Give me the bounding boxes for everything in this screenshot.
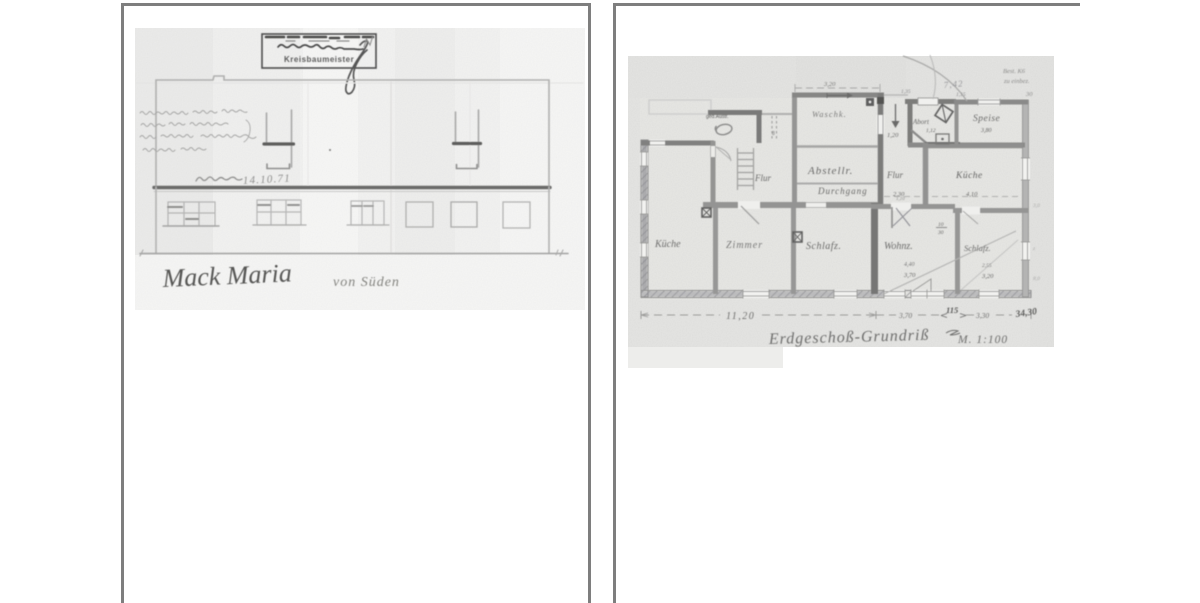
svg-text:zu einbez.: zu einbez. [1003, 78, 1030, 85]
svg-text:1,12: 1,12 [926, 128, 936, 134]
svg-text:Speise: Speise [973, 114, 1000, 124]
svg-text:8: 8 [772, 131, 775, 137]
svg-text:Wohnz.: Wohnz. [884, 241, 913, 252]
svg-text:3,30: 3,30 [975, 311, 989, 320]
svg-text:von Süden: von Süden [333, 275, 400, 290]
svg-text:Flur: Flur [754, 173, 771, 183]
svg-text:Waschk.: Waschk. [812, 109, 847, 119]
svg-text:Flur: Flur [886, 170, 903, 180]
svg-text:Küche: Küche [654, 239, 681, 250]
svg-text:4,40: 4,40 [904, 261, 915, 268]
svg-text:3,20: 3,20 [823, 81, 836, 88]
svg-text:Abstellr.: Abstellr. [807, 165, 853, 177]
svg-text:30: 30 [1025, 91, 1033, 98]
svg-text:Mack Maria: Mack Maria [161, 258, 292, 293]
svg-text:Abort: Abort [912, 118, 930, 126]
svg-text:11,20: 11,20 [726, 311, 755, 322]
svg-text:Kreisbaumeister: Kreisbaumeister [284, 55, 354, 64]
svg-text:M. 1:100: M. 1:100 [957, 334, 1008, 346]
svg-text:Zimmer: Zimmer [726, 240, 763, 251]
svg-text:Schlafz.: Schlafz. [806, 241, 841, 252]
svg-text:3,80: 3,80 [980, 128, 992, 134]
svg-text:3,70: 3,70 [903, 272, 916, 279]
svg-text:3,20: 3,20 [981, 273, 994, 280]
svg-text:1,15: 1,15 [956, 92, 966, 98]
svg-text:1,20: 1,20 [887, 132, 899, 139]
svg-text:Durchgang: Durchgang [817, 186, 868, 196]
svg-text:Best. K6: Best. K6 [1003, 68, 1026, 75]
svg-text:115: 115 [946, 305, 959, 315]
svg-text:7,42: 7,42 [943, 78, 964, 90]
svg-text:14.10.71: 14.10.71 [243, 172, 292, 187]
svg-text:Küche: Küche [955, 171, 983, 181]
svg-text:8,0: 8,0 [1033, 276, 1040, 282]
svg-text:1,35: 1,35 [901, 89, 911, 95]
svg-text:3,0: 3,0 [1032, 203, 1040, 209]
svg-text:Schlafz.: Schlafz. [964, 243, 991, 253]
svg-text:3,70: 3,70 [898, 311, 912, 320]
svg-text:2,55: 2,55 [982, 263, 992, 269]
svg-text:30: 30 [937, 230, 944, 236]
